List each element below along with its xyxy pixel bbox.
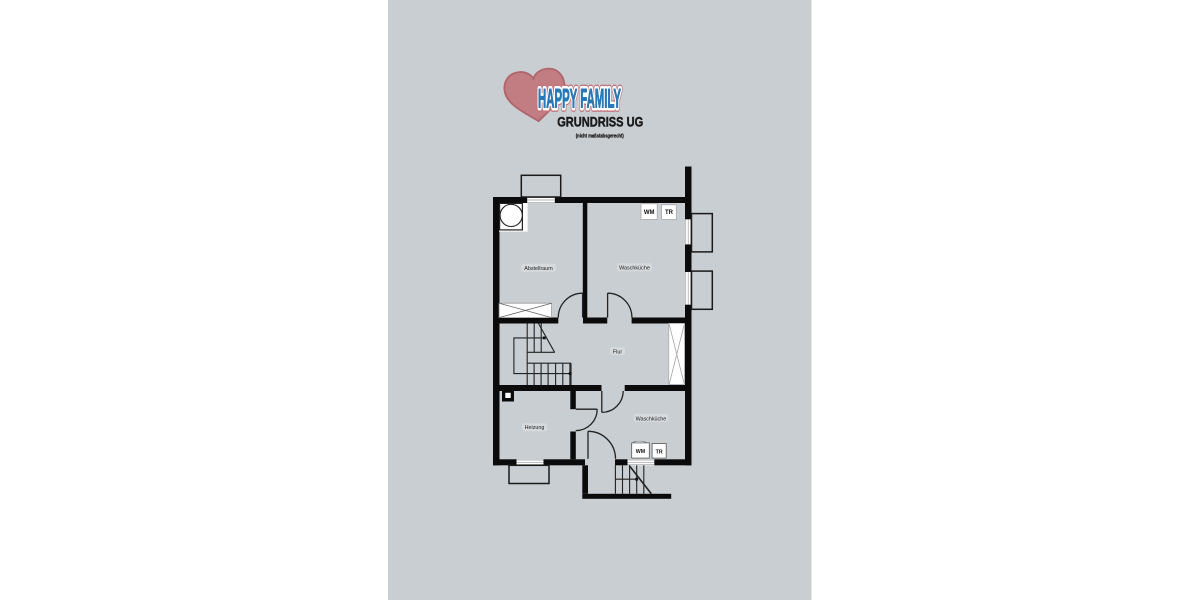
svg-text:Waschküche: Waschküche — [619, 266, 650, 272]
svg-text:TR: TR — [656, 449, 663, 455]
svg-text:TR: TR — [665, 210, 674, 216]
svg-text:Heizung: Heizung — [525, 425, 545, 431]
svg-text:WM: WM — [636, 449, 646, 455]
svg-text:Flur: Flur — [613, 350, 622, 356]
svg-text:Waschküche: Waschküche — [636, 416, 667, 422]
svg-text:Abstellraum: Abstellraum — [524, 266, 553, 272]
svg-text:(nicht maßstabsgerecht): (nicht maßstabsgerecht) — [576, 133, 624, 139]
svg-text:HAPPY FAMILY: HAPPY FAMILY — [538, 83, 621, 114]
svg-text:GRUNDRISS UG: GRUNDRISS UG — [557, 113, 643, 129]
svg-text:WM: WM — [644, 210, 655, 216]
